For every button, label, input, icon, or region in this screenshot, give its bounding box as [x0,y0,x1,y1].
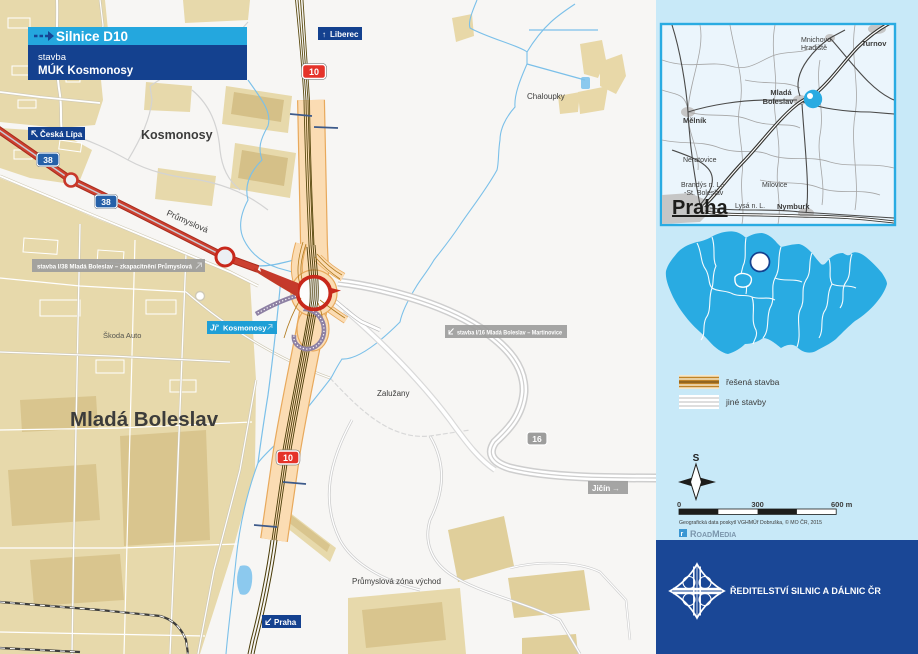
svg-text:Škoda Auto: Škoda Auto [103,331,141,340]
svg-text:Turnov: Turnov [862,39,888,48]
svg-text:0: 0 [677,500,681,509]
svg-text:Česká Lípa: Česká Lípa [40,130,83,139]
svg-text:↑: ↑ [322,30,326,39]
svg-text:Brandýs n. L.-: Brandýs n. L.- [681,182,725,189]
svg-text:38: 38 [101,197,111,207]
svg-text:Jíʹ: Jíʹ [210,324,220,333]
svg-text:Zalužany: Zalužany [377,389,409,398]
svg-text:Mladá: Mladá [770,88,792,97]
svg-text:→: → [612,484,620,493]
svg-text:Chaloupky: Chaloupky [527,92,565,101]
svg-text:600 m: 600 m [831,500,853,509]
svg-text:10: 10 [309,67,319,77]
svg-text:Kosmonosy: Kosmonosy [223,324,267,333]
svg-text:stavba I/16 Mladá Boleslav – M: stavba I/16 Mladá Boleslav – Martinovice [457,330,562,337]
svg-text:Liberec: Liberec [330,30,359,39]
svg-text:Kosmonosy: Kosmonosy [141,128,213,142]
svg-text:Jičín: Jičín [592,484,610,493]
svg-text:Mnichovo: Mnichovo [801,37,831,44]
svg-text:Praha: Praha [672,197,728,219]
svg-text:Mladá Boleslav: Mladá Boleslav [70,408,219,431]
svg-text:ŘEDITELSTVÍ SILNIC A DÁLNIC ČR: ŘEDITELSTVÍ SILNIC A DÁLNIC ČR [730,585,881,596]
svg-text:Neratovice: Neratovice [683,157,717,164]
svg-text:stavba: stavba [38,52,67,63]
svg-text:38: 38 [43,155,53,165]
svg-text:Milovice: Milovice [762,182,787,189]
svg-text:MÚK Kosmonosy: MÚK Kosmonosy [38,64,134,77]
svg-text:Boleslav: Boleslav [763,97,795,106]
svg-text:stavba I/38 Mladá Boleslav – z: stavba I/38 Mladá Boleslav – zkapacitněn… [37,263,192,271]
svg-text:Hradiště: Hradiště [801,45,827,52]
svg-text:Silnice D10: Silnice D10 [56,29,128,44]
svg-text:10: 10 [283,453,293,463]
svg-text:300: 300 [751,500,764,509]
svg-text:r: r [681,531,684,538]
svg-text:Průmyslová zóna východ: Průmyslová zóna východ [352,577,441,586]
svg-text:16: 16 [532,434,542,444]
svg-text:-St. Boleslav: -St. Boleslav [684,190,724,197]
svg-text:Nymburk: Nymburk [777,202,810,211]
svg-text:jiné stavby: jiné stavby [725,397,767,407]
svg-text:S: S [693,453,700,464]
svg-text:Praha: Praha [274,618,297,627]
svg-text:Mělník: Mělník [683,116,707,125]
svg-text:Geografická data poskytl VGHMÚ: Geografická data poskytl VGHMÚř Dobruška… [679,519,822,526]
svg-text:řešená stavba: řešená stavba [726,377,780,387]
svg-text:Lysá n. L.: Lysá n. L. [735,203,765,210]
